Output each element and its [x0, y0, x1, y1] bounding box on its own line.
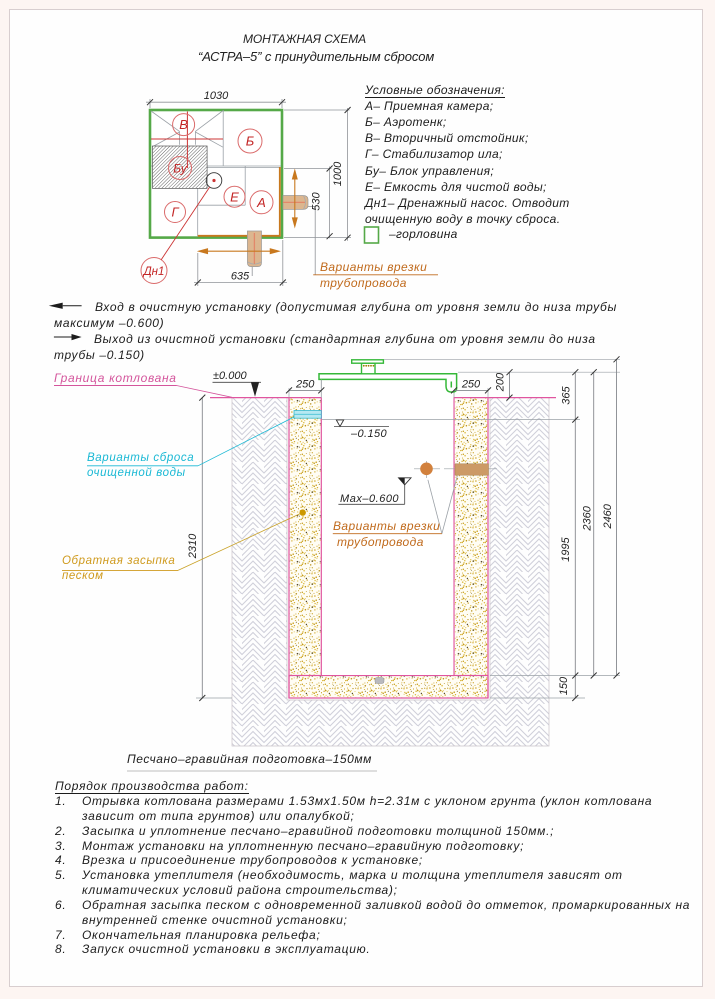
svg-text:200: 200 [495, 372, 507, 392]
svg-text:Дн1: Дн1 [142, 266, 165, 278]
svg-text:±0.000: ±0.000 [213, 370, 247, 382]
svg-text:Мах–0.600: Мах–0.600 [340, 493, 399, 505]
svg-text:Е: Е [230, 189, 239, 204]
svg-text:Г: Г [171, 205, 179, 220]
svg-text:–0.150: –0.150 [350, 428, 388, 440]
svg-text:2360: 2360 [582, 505, 594, 531]
svg-text:250: 250 [295, 379, 315, 391]
svg-text:1995: 1995 [560, 536, 572, 561]
svg-text:Б: Б [246, 134, 255, 149]
svg-text:250: 250 [461, 379, 481, 391]
svg-text:635: 635 [231, 271, 250, 283]
svg-text:1030: 1030 [204, 90, 229, 102]
svg-text:2310: 2310 [187, 533, 199, 559]
svg-text:1000: 1000 [332, 161, 344, 186]
svg-text:В: В [179, 117, 188, 132]
svg-text:Бу: Бу [173, 161, 188, 175]
svg-text:2460: 2460 [602, 503, 614, 529]
svg-text:530: 530 [311, 191, 323, 210]
svg-text:150: 150 [558, 676, 570, 695]
svg-text:А: А [256, 195, 266, 210]
svg-text:365: 365 [561, 385, 573, 404]
